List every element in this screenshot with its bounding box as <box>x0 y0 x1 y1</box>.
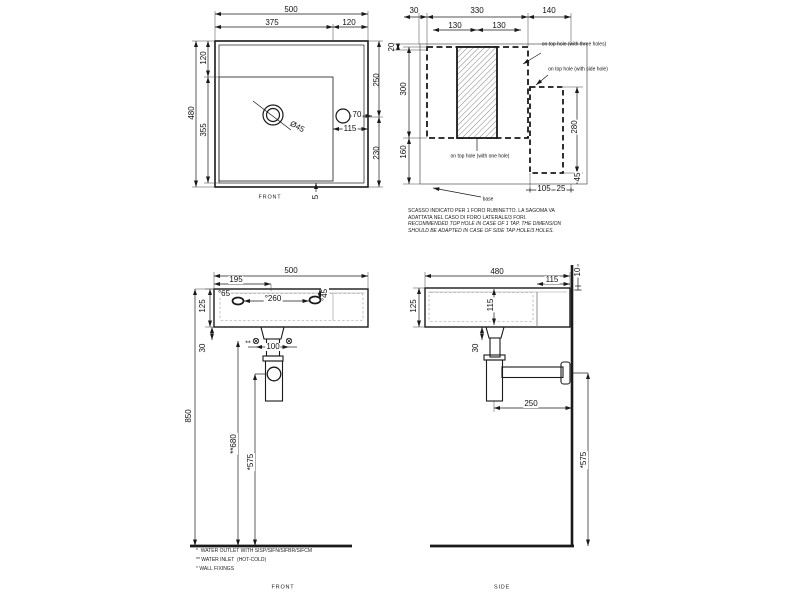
note-italian-1: SCASSO INDICATO PER 1 FORO RUBINETTO. LA… <box>408 209 555 214</box>
side-view-label: SIDE <box>494 585 510 591</box>
dim-plan-bowl-width: 375 <box>265 19 278 27</box>
dim-tap-hole-offset: 115 <box>343 125 358 133</box>
label-one-hole: on top hole (with one hole) <box>451 155 510 160</box>
dim-front-drain-offset: 195 <box>228 276 243 284</box>
inlet-screw-left <box>253 338 258 343</box>
inlet-screw-right <box>286 338 291 343</box>
dim-fixing-left: °65 <box>217 290 231 298</box>
label-three-holes: on top hole (with three holes) <box>542 43 606 48</box>
front-view <box>190 272 368 546</box>
dim-plan-right-offset: 120 <box>342 19 355 27</box>
dim-plan-gap: 5 <box>312 195 320 199</box>
dim-inlet-height: **680 <box>230 433 238 455</box>
trap-lip <box>263 356 283 361</box>
basin-bowl <box>219 77 333 181</box>
tap-hole <box>336 109 350 123</box>
dim-side-depth: 480 <box>490 268 503 276</box>
side-tailpipe <box>490 338 500 357</box>
dim-layout-105: 105 <box>536 185 551 193</box>
side-drain-flange <box>486 327 504 338</box>
dim-trap-to-wall: 250 <box>523 400 538 408</box>
footnote-wall-fixings: ° WALL FIXINGS <box>196 567 234 572</box>
dim-plan-right-upper: 250 <box>373 73 381 86</box>
note-english-2: SHOULD BE ADAPTED IN CASE OF SIDE TAP HO… <box>408 229 554 234</box>
plan-ext-lines <box>192 11 383 187</box>
dim-layout-300: 300 <box>400 82 408 95</box>
inlet-asterisks: ** <box>245 341 250 348</box>
dim-layout-25: 25 <box>556 185 567 193</box>
side-basin-inner <box>428 292 567 327</box>
fixing-hole-right <box>310 297 321 304</box>
one-hole-cutout <box>457 47 497 138</box>
basin-rim <box>219 45 364 183</box>
dim-tap-hole-diameter: 70 <box>352 111 363 119</box>
dim-fixing-depth: °45 <box>321 288 329 302</box>
label-base: base <box>483 198 494 203</box>
dim-layout-330: 330 <box>470 7 483 15</box>
dim-layout-140: 140 <box>542 7 555 15</box>
side-basin-body <box>425 288 570 327</box>
dim-layout-280: 280 <box>571 119 579 134</box>
dim-side-height: 125 <box>410 299 418 312</box>
side-hole-cutout <box>530 87 563 173</box>
fixing-hole-left <box>233 298 244 305</box>
dim-layout-130-left: 130 <box>448 22 461 30</box>
dim-outlet-height-side: *575 <box>580 451 588 469</box>
base-outline <box>420 44 587 184</box>
dim-layout-160: 160 <box>400 145 408 158</box>
dim-layout-20: 20 <box>388 43 396 52</box>
wall-flange <box>561 362 570 384</box>
front-dim-lines <box>195 276 368 546</box>
dim-side-inner-115: 115 <box>487 298 495 313</box>
side-ext-lines <box>413 272 582 412</box>
dim-outlet-height-front: *575 <box>247 453 255 471</box>
plan-view <box>192 11 383 192</box>
dim-plan-top-offset: 120 <box>200 51 208 64</box>
note-english-1: RECOMMENDED TOP HOLE IN CASE OF 1 TAP. T… <box>408 222 561 227</box>
side-bottle-trap <box>487 360 503 401</box>
footnote-water-outlet: * WATER OUTLET WITH SISP/SIFN/SIFBR/SIFC… <box>196 549 312 554</box>
waste-outlet-pipe <box>502 367 563 378</box>
dim-side-wall-gap: 10 <box>574 267 582 278</box>
dim-fixing-spacing: °260 <box>264 295 283 303</box>
label-side-hole: on top hole (with side hole) <box>548 68 608 73</box>
dim-plan-depth: 480 <box>188 106 196 119</box>
front-basin-body <box>214 289 368 327</box>
note-italian-2: ADATTATA NEL CASO DI FORO LATERALE/3 FOR… <box>408 216 527 221</box>
dim-side-gap30: 30 <box>472 344 480 353</box>
dim-side-115-top: 115 <box>545 276 560 284</box>
drain-flange <box>261 327 284 339</box>
dim-front-height: 125 <box>199 299 207 312</box>
footnote-water-inlet: ** WATER INLET (HOT-COLD) <box>196 558 266 563</box>
dim-layout-30: 30 <box>410 7 419 15</box>
side-dim-lines <box>419 264 588 546</box>
dim-mounting-height: 850 <box>185 408 193 423</box>
dim-inlet-spacing: 100 <box>265 343 280 351</box>
dim-plan-right-lower: 230 <box>373 146 381 159</box>
plan-view-label: FRONT <box>259 195 282 201</box>
technical-drawing-sheet: 500 375 120 120 355 480 250 230 Ø45 70 1… <box>0 0 800 600</box>
front-view-label: FRONT <box>272 585 295 591</box>
dim-plan-width: 500 <box>284 6 297 14</box>
dim-layout-45: 45 <box>574 172 582 183</box>
side-view <box>413 264 588 547</box>
trap-outlet-circle <box>267 367 281 381</box>
dim-plan-bowl-depth: 355 <box>200 123 208 136</box>
dim-layout-130-right: 130 <box>492 22 505 30</box>
dim-front-width: 500 <box>284 267 297 275</box>
dim-front-gap30: 30 <box>199 344 207 353</box>
basin-outline <box>215 41 368 187</box>
